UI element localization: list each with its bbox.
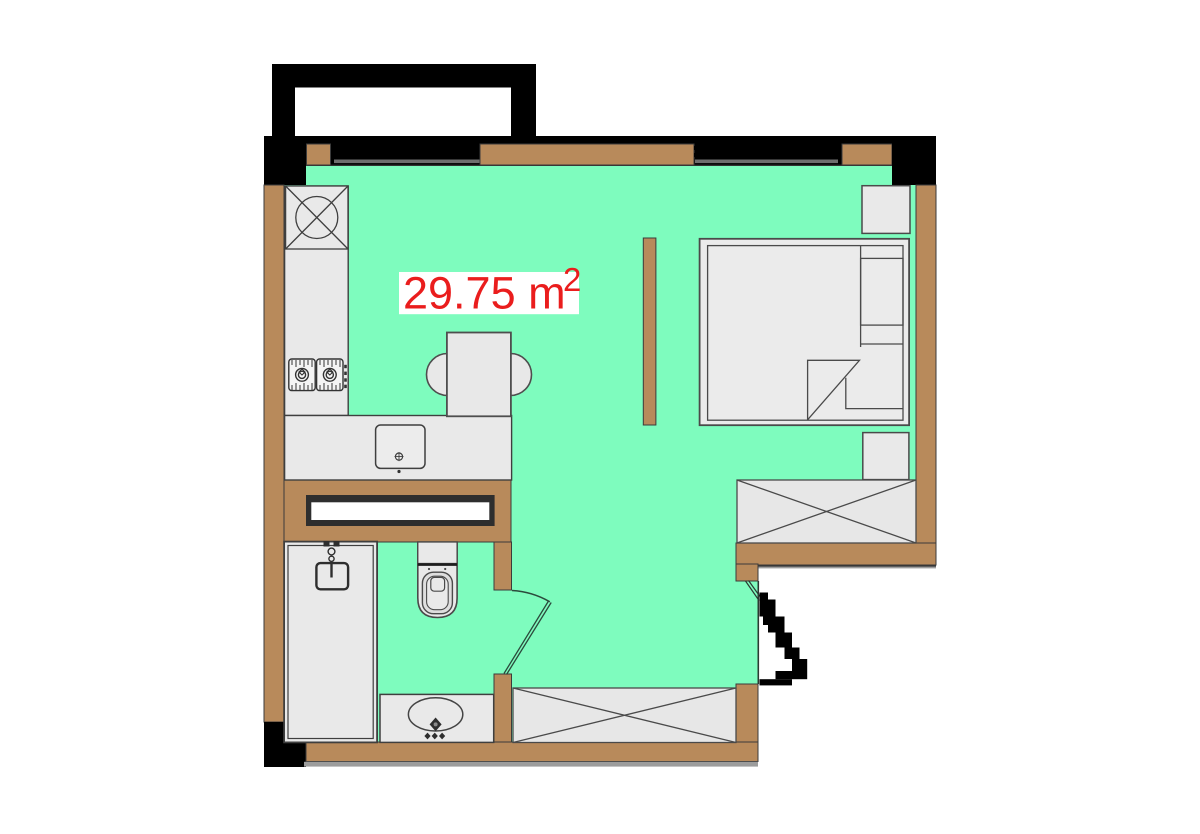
svg-text:29.75 m: 29.75 m — [403, 268, 566, 319]
svg-text:2: 2 — [563, 261, 581, 298]
